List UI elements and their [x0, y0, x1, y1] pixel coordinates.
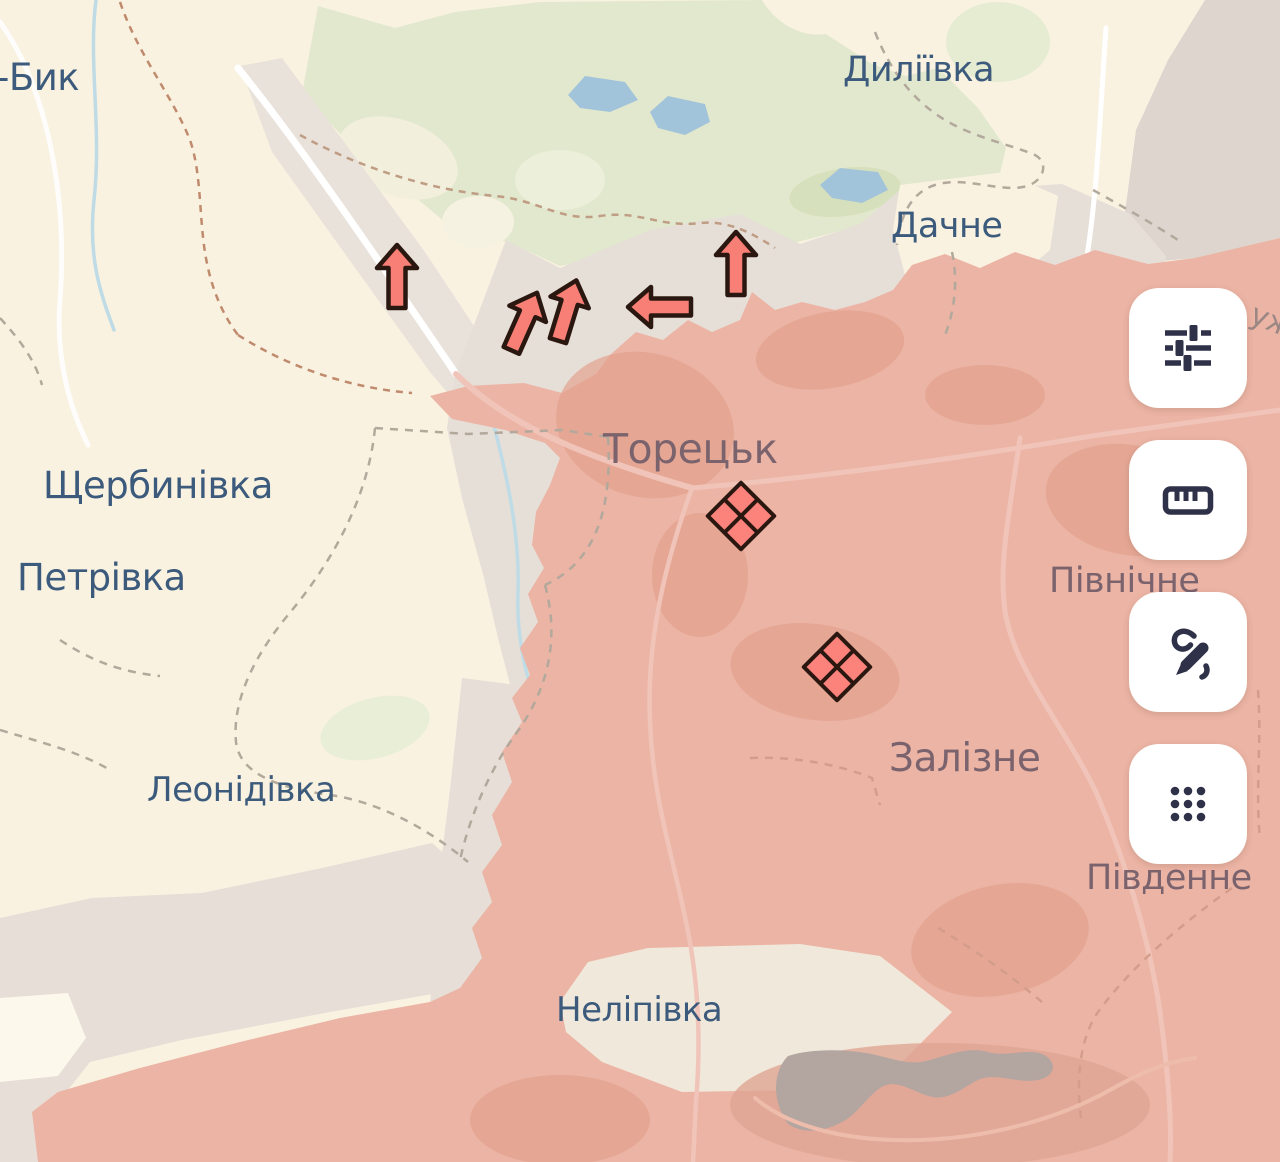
place-label-dyliivka: Диліївка — [843, 50, 994, 90]
grid-dots-icon — [1160, 776, 1216, 832]
place-label-byk: -Бик — [0, 56, 79, 99]
place-label-pivdenne: Південне — [1086, 858, 1252, 898]
sliders-icon — [1160, 320, 1216, 376]
map-canvas[interactable]: -БикДиліївкаДачнеЩербинівкаПетрівкаЛеоні… — [0, 0, 1280, 1162]
place-label-shcherbynivka: Щербинівка — [43, 464, 273, 507]
map-filters-button[interactable] — [1129, 288, 1247, 408]
place-label-leonidivka: Леонідівка — [147, 770, 335, 810]
place-label-zalizne: Залізне — [889, 736, 1040, 781]
place-label-toretsk: Торецьк — [602, 425, 778, 473]
draw-button[interactable] — [1129, 592, 1247, 712]
ruler-icon — [1160, 472, 1216, 528]
place-label-dachne: Дачне — [891, 206, 1002, 246]
place-label-petrivka: Петрівка — [17, 556, 186, 599]
map-app-window: -БикДиліївкаДачнеЩербинівкаПетрівкаЛеоні… — [0, 0, 1280, 1162]
place-label-nelipivka: Неліпівка — [556, 990, 722, 1030]
measure-button[interactable] — [1129, 440, 1247, 560]
apps-grid-button[interactable] — [1129, 744, 1247, 864]
pen-scribble-icon — [1160, 624, 1216, 680]
